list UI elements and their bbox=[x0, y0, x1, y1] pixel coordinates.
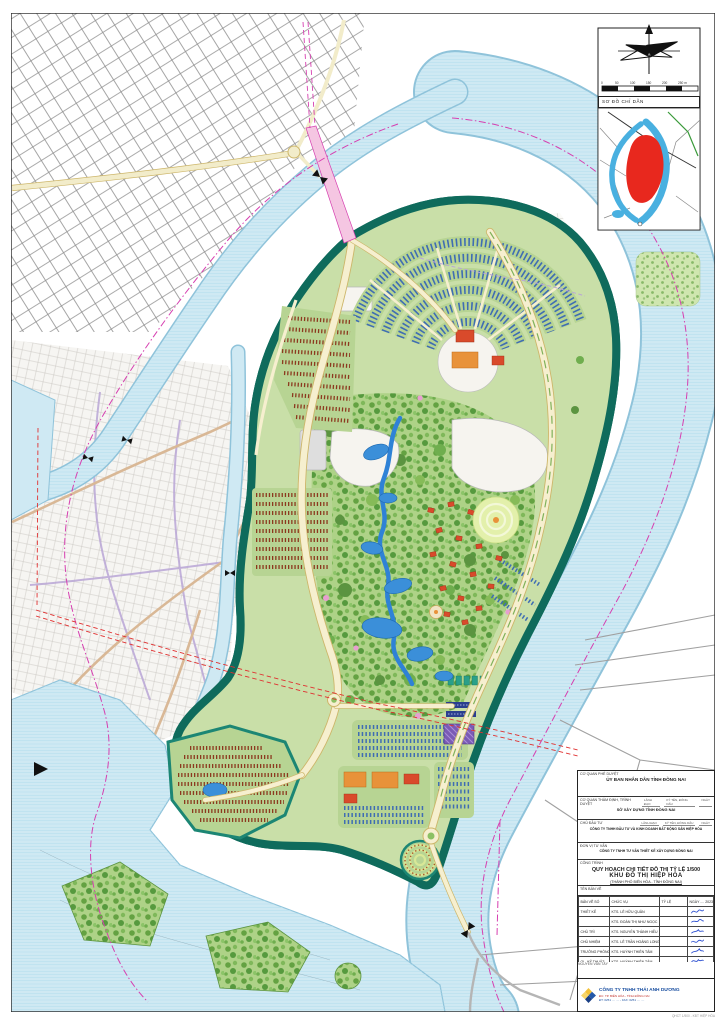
company-address: ĐC: TP. BIÊN HÒA - TỈNH ĐỒNG NAI bbox=[599, 994, 680, 998]
role-cell: THIẾT KẾ bbox=[579, 907, 610, 917]
sign-cell: NGÀY bbox=[699, 821, 712, 826]
role-cell bbox=[579, 917, 610, 927]
name-cell: KTS. NGUYỄN THÀNH HIẾU bbox=[610, 927, 660, 937]
company-logo-icon bbox=[581, 988, 596, 1003]
role-cell: CHỦ TRÌ bbox=[579, 927, 610, 937]
project-location: (THÀNH PHỐ BIÊN HÒA - TỈNH ĐỒNG NAI) bbox=[578, 880, 714, 884]
role-cell: TRƯỞNG PHÒNG bbox=[579, 947, 610, 957]
scale-bar: 0 50 100 150 200 250 m bbox=[601, 81, 698, 91]
col-header: CHỨC VỤ bbox=[610, 897, 660, 907]
name-cell: KTS. LÊ TRẦN HOÀNG LONG bbox=[610, 937, 660, 947]
drawing-label: TÊN BẢN VẼ bbox=[580, 887, 601, 891]
name-cell: KTS. ĐOÀN THỊ NHƯ NGỌC bbox=[610, 917, 660, 927]
scale-tick-label: 150 bbox=[646, 81, 652, 85]
scale-tick-label: 100 bbox=[630, 81, 636, 85]
approving-agency: ỦY BAN NHÂN DÂN TỈNH ĐỒNG NAI bbox=[578, 777, 714, 783]
approving-label: CƠ QUAN PHÊ DUYỆT bbox=[580, 772, 619, 776]
appraising-agency-row: CƠ QUAN THẨM ĐỊNH, TRÌNH DUYỆT LÃNH ĐẠO … bbox=[578, 797, 714, 820]
signature-table: BẢN VẼ SỐ CHỨC VỤ TỶ LỆ NGÀY .... 2023 T… bbox=[578, 896, 714, 962]
investor-label: CHỦ ĐẦU TƯ bbox=[580, 821, 603, 826]
scale-tick-label: 50 bbox=[615, 81, 619, 85]
sign-cell: KÝ TÊN, ĐÓNG DẤU bbox=[664, 798, 695, 807]
print-note: QHCT 1/500 - KĐT HIỆP HÒA bbox=[500, 1014, 715, 1018]
signature-mark bbox=[690, 928, 705, 935]
sign-cell: LÃNH ĐẠO bbox=[642, 798, 661, 807]
company-name: CÔNG TY TNHH THÁI ANH DƯƠNG bbox=[599, 988, 680, 993]
scale-tick-label: 250 m bbox=[678, 81, 687, 85]
col-header: NGÀY .... 2023 bbox=[688, 897, 714, 907]
circular-lawn bbox=[473, 497, 519, 543]
drawing-name-row: TÊN BẢN VẼ bbox=[578, 886, 714, 896]
project-name: KHU ĐÔ THỊ HIỆP HÒA bbox=[578, 873, 714, 879]
sign-cells: LÃNH ĐẠO KÝ TÊN, ĐÓNG DẤU NGÀY bbox=[642, 798, 712, 807]
table-row: TRƯỞNG PHÒNG KTS. HUỲNH THIÊN TÂM bbox=[579, 947, 714, 957]
title-block: CƠ QUAN PHÊ DUYỆT ỦY BAN NHÂN DÂN TỈNH Đ… bbox=[577, 770, 715, 1012]
inset-title: SƠ ĐỒ CHỈ DẪN bbox=[598, 96, 700, 108]
name-cell: KTS. HUỲNH THIÊN TÂM bbox=[610, 947, 660, 957]
signature-table-row: BẢN VẼ SỐ CHỨC VỤ TỶ LỆ NGÀY .... 2023 T… bbox=[578, 896, 714, 962]
table-row: THIẾT KẾ KTS. LÊ HỮU QUÂN bbox=[579, 907, 714, 917]
col-header: TỶ LỆ bbox=[660, 897, 688, 907]
scale-tick-label: 0 bbox=[601, 81, 603, 85]
approving-agency-row: CƠ QUAN PHÊ DUYỆT ỦY BAN NHÂN DÂN TỈNH Đ… bbox=[578, 771, 714, 797]
project-label: CÔNG TRÌNH bbox=[580, 861, 603, 865]
signature-mark bbox=[690, 918, 705, 925]
investor-name: CÔNG TY TNHH ĐẦU TƯ VÀ KINH DOANH BẤT ĐỘ… bbox=[578, 827, 714, 831]
sign-cell: KÝ TÊN, ĐÓNG DẤU bbox=[663, 821, 696, 826]
sign-cells: LÃNH ĐẠO KÝ TÊN, ĐÓNG DẤU NGÀY bbox=[640, 821, 712, 826]
location-inset-map bbox=[598, 108, 700, 230]
table-header-row: BẢN VẼ SỐ CHỨC VỤ TỶ LỆ NGÀY .... 2023 bbox=[579, 897, 714, 907]
signature-mark bbox=[690, 938, 705, 945]
consultant-label: ĐƠN VỊ TƯ VẤN bbox=[580, 844, 607, 848]
role-cell: CHỦ NHIỆM bbox=[579, 937, 610, 947]
housing-rows-maroon-west bbox=[252, 488, 332, 576]
appraising-label: CƠ QUAN THẨM ĐỊNH, TRÌNH DUYỆT bbox=[580, 798, 642, 807]
signature-mark bbox=[690, 948, 705, 955]
col-header: BẢN VẼ SỐ bbox=[579, 897, 610, 907]
consultant-name: CÔNG TY TNHH TƯ VẤN THIẾT KẾ XÂY DỰNG ĐỒ… bbox=[578, 849, 714, 853]
scale-tick-label: 200 bbox=[662, 81, 668, 85]
park-plaza bbox=[430, 606, 443, 619]
sign-cell: NGÀY bbox=[699, 798, 712, 807]
sign-cell: LÃNH ĐẠO bbox=[640, 821, 659, 826]
company-phone: ĐT: 0251 .... .... - FAX: 0251 .... .... bbox=[599, 998, 680, 1002]
investor-row: CHỦ ĐẦU TƯ LÃNH ĐẠO KÝ TÊN, ĐÓNG DẤU NGÀ… bbox=[578, 820, 714, 843]
plan-sheet: 0 50 100 150 200 250 m bbox=[0, 0, 724, 1024]
table-row: KTS. ĐOÀN THỊ NHƯ NGỌC bbox=[579, 917, 714, 927]
table-row: CHỦ TRÌ KTS. NGUYỄN THÀNH HIẾU bbox=[579, 927, 714, 937]
table-row: CHỦ NHIỆM KTS. LÊ TRẦN HOÀNG LONG bbox=[579, 937, 714, 947]
name-cell: KTS. LÊ HỮU QUÂN bbox=[610, 907, 660, 917]
roundabout bbox=[288, 146, 300, 158]
signature-mark bbox=[690, 908, 705, 915]
name-cell: KTS. HUỲNH THIÊN TÂM bbox=[610, 957, 660, 963]
consultant-row: ĐƠN VỊ TƯ VẤN CÔNG TY TNHH TƯ VẤN THIẾT … bbox=[578, 843, 714, 860]
appraising-agency: SỞ XÂY DỰNG TỈNH ĐỒNG NAI bbox=[578, 808, 714, 813]
signature-mark bbox=[690, 958, 705, 962]
project-row: CÔNG TRÌNH QUY HOẠCH CHI TIẾT ĐÔ THỊ TỶ … bbox=[578, 860, 714, 886]
company-block: CÔNG TY TNHH THÁI ANH DƯƠNG ĐC: TP. BIÊN… bbox=[578, 978, 714, 1011]
digital-signer-name: NGUYỄN VĂN TÂY bbox=[578, 962, 608, 966]
